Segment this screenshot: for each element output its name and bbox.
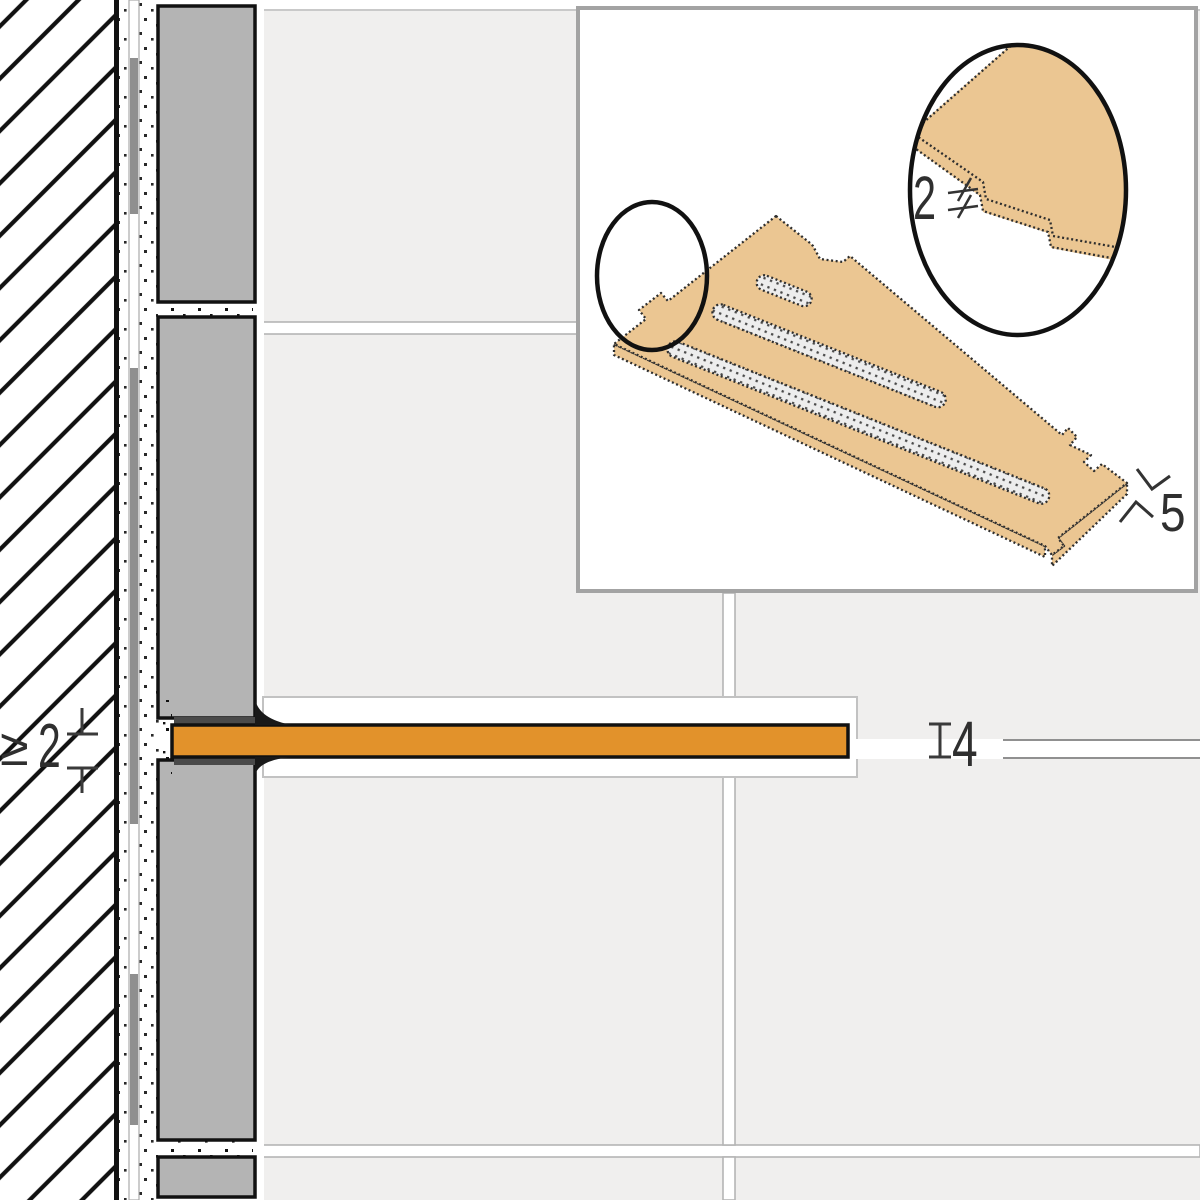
grout-joint-vertical	[723, 1157, 735, 1200]
dim-tab-detail: 2	[913, 168, 936, 229]
wall-hatch	[0, 0, 116, 1200]
tile-section	[158, 6, 255, 302]
dim-shelf-thickness: 5	[1160, 486, 1186, 540]
thin-joint-fill	[855, 739, 1200, 759]
wall-surface-line	[114, 0, 119, 1200]
mortar-joint-speckle	[158, 700, 172, 774]
mortar-layer	[119, 0, 158, 1200]
masonry-wall-section	[0, 0, 119, 1200]
tile-section-column	[158, 6, 255, 1197]
installation-diagram: ≥ 2 4 5 2	[0, 0, 1200, 1200]
diagram-canvas	[0, 0, 1200, 1200]
mortar-joint-speckle	[160, 302, 253, 317]
mortar-joint-speckle	[160, 1140, 253, 1157]
grout-joint-vertical	[723, 777, 735, 1145]
grout-joint-vertical	[723, 593, 735, 697]
dim-min-embed-prefix: ≥	[0, 722, 29, 774]
tile-section	[158, 760, 255, 1140]
thin-tile-joint	[855, 739, 1200, 759]
dim-joint-height: 4	[952, 712, 978, 776]
dim-min-embed-value: 2	[38, 716, 61, 778]
grout-joint-horizontal	[263, 1145, 1200, 1157]
shelf-plate-section	[172, 725, 848, 757]
tile-section	[158, 1157, 255, 1197]
tile-section	[158, 317, 255, 718]
grout-joint-horizontal	[263, 322, 579, 334]
